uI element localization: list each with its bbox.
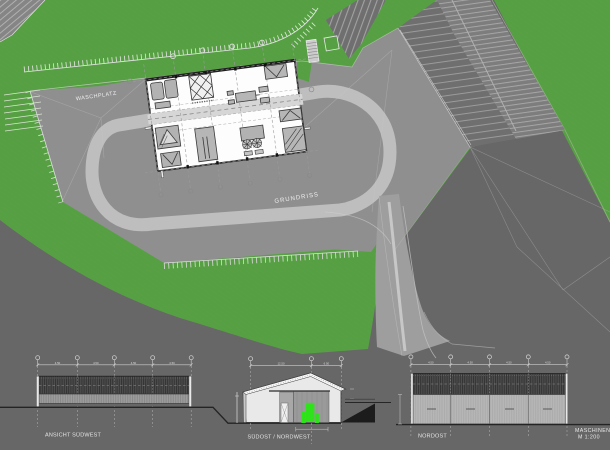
svg-text:4.50: 4.50 (55, 361, 61, 365)
svg-text:4.50: 4.50 (545, 361, 551, 365)
svg-text:MASCHINENHALLE: MASCHINENHALLE (575, 428, 610, 434)
svg-text:M 1:200: M 1:200 (578, 435, 600, 441)
svg-text:SÜDOST / NORDWEST: SÜDOST / NORDWEST (248, 434, 311, 441)
svg-text:6.50: 6.50 (324, 362, 330, 366)
svg-text:ANSICHT SÜDWEST: ANSICHT SÜDWEST (45, 432, 102, 439)
svg-text:12.50: 12.50 (278, 362, 285, 366)
svg-text:4.50: 4.50 (506, 361, 512, 365)
svg-text:4.50: 4.50 (131, 361, 137, 365)
svg-text:4.50: 4.50 (93, 361, 99, 365)
svg-text:NORDOST: NORDOST (418, 434, 447, 440)
svg-text:4.50: 4.50 (169, 361, 175, 365)
svg-text:4.50: 4.50 (467, 361, 473, 365)
svg-text:4.50: 4.50 (428, 361, 434, 365)
